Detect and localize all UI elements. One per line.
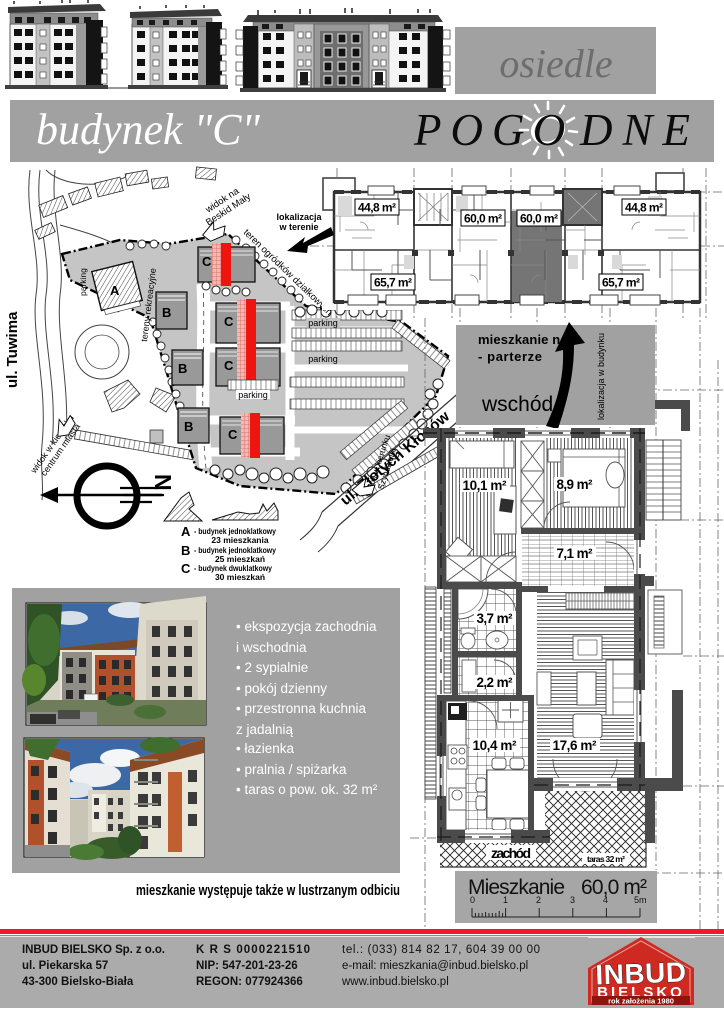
svg-text:• łazienka: • łazienka — [236, 741, 294, 756]
svg-text:O: O — [533, 105, 566, 155]
svg-text:3,7 m²: 3,7 m² — [477, 611, 514, 626]
svg-text:60,0 m²: 60,0 m² — [520, 212, 558, 226]
svg-text:44,8 m²: 44,8 m² — [358, 201, 396, 215]
svg-text:INBUD BIELSKO Sp. z o.o.: INBUD BIELSKO Sp. z o.o. — [22, 944, 165, 956]
svg-text:8,9 m²: 8,9 m² — [557, 477, 594, 492]
svg-text:mieszkanie na:: mieszkanie na: — [478, 332, 572, 347]
svg-text:ul. Piekarska 57: ul. Piekarska 57 — [22, 960, 108, 972]
svg-text:30 mieszkań: 30 mieszkań — [215, 572, 265, 582]
svg-text:Mieszkanie: Mieszkanie — [468, 876, 565, 899]
svg-text:17,6 m²: 17,6 m² — [553, 738, 598, 753]
svg-text:3: 3 — [570, 895, 575, 905]
svg-text:B: B — [184, 419, 193, 434]
svg-text:44,8 m²: 44,8 m² — [625, 201, 663, 215]
svg-text:REGON: 077924366: REGON: 077924366 — [196, 976, 303, 988]
svg-text:POG: POG — [413, 105, 533, 155]
svg-text:• taras o pow. ok. 32 m²: • taras o pow. ok. 32 m² — [236, 782, 378, 797]
svg-text:2,2 m²: 2,2 m² — [477, 675, 514, 690]
svg-text:DNE: DNE — [579, 105, 700, 155]
svg-text:C: C — [181, 561, 191, 576]
svg-text:lokalizacja w budynku: lokalizacja w budynku — [596, 333, 606, 420]
svg-text:parking: parking — [238, 390, 268, 400]
svg-text:C: C — [228, 427, 238, 442]
svg-text:w terenie: w terenie — [278, 222, 318, 232]
svg-text:- parterze: - parterze — [478, 349, 542, 364]
svg-text:parking: parking — [308, 354, 338, 364]
svg-text:C: C — [224, 314, 234, 329]
svg-text:rok założenia 1980: rok założenia 1980 — [608, 997, 674, 1006]
svg-text:parking: parking — [78, 268, 88, 296]
svg-text:• 2 sypialnie: • 2 sypialnie — [236, 660, 308, 675]
svg-text:2: 2 — [536, 895, 541, 905]
svg-text:• przestronna kuchnia: • przestronna kuchnia — [236, 701, 367, 716]
svg-text:10,1 m²: 10,1 m² — [463, 478, 508, 493]
svg-text:K R S 0000221510: K R S 0000221510 — [196, 944, 310, 956]
svg-text:osiedle: osiedle — [499, 41, 612, 86]
svg-text:parking: parking — [308, 318, 338, 328]
svg-text:B: B — [181, 543, 190, 558]
svg-text:• pokój dzienny: • pokój dzienny — [236, 681, 327, 696]
svg-text:10,4 m²: 10,4 m² — [473, 738, 518, 753]
svg-text:60,0 m²: 60,0 m² — [464, 212, 502, 226]
svg-text:lokalizacja: lokalizacja — [276, 212, 322, 222]
svg-text:C: C — [202, 254, 212, 269]
svg-text:wschód: wschód — [481, 393, 553, 416]
svg-text:ul. Tuwima: ul. Tuwima — [4, 311, 21, 388]
svg-text:e-mail: mieszkania@inbud.biels: e-mail: mieszkania@inbud.bielsko.pl — [342, 960, 528, 972]
svg-text:7,1 m²: 7,1 m² — [557, 546, 594, 561]
svg-text:N: N — [150, 474, 176, 491]
svg-text:23 mieszkania: 23 mieszkania — [211, 535, 268, 545]
svg-text:B: B — [162, 305, 171, 320]
svg-text:5m: 5m — [634, 895, 647, 905]
svg-text:NIP: 547-201-23-26: NIP: 547-201-23-26 — [196, 960, 298, 972]
svg-text:budynek "C": budynek "C" — [36, 105, 260, 154]
svg-text:A: A — [110, 283, 120, 298]
svg-text:www.inbud.bielsko.pl: www.inbud.bielsko.pl — [341, 976, 449, 988]
svg-text:zachód: zachód — [491, 845, 531, 861]
svg-text:• ekspozycja zachodnia: • ekspozycja zachodnia — [236, 619, 377, 634]
svg-text:mieszkanie występuje także w l: mieszkanie występuje także w lustrzanym … — [136, 883, 400, 899]
svg-text:taras 32 m²: taras 32 m² — [587, 854, 625, 864]
svg-text:65,7 m²: 65,7 m² — [602, 276, 640, 290]
svg-text:43-300 Bielsko-Biała: 43-300 Bielsko-Biała — [22, 976, 134, 988]
svg-text:A: A — [181, 524, 191, 539]
svg-text:z jadalnią: z jadalnią — [236, 722, 294, 737]
svg-text:0: 0 — [470, 895, 475, 905]
svg-text:65,7 m²: 65,7 m² — [374, 276, 412, 290]
svg-text:tel.: (033) 814 82 17, 604 39: tel.: (033) 814 82 17, 604 39 00 00 — [342, 944, 540, 956]
svg-text:4: 4 — [603, 895, 608, 905]
svg-text:C: C — [224, 358, 234, 373]
svg-text:i wschodnia: i wschodnia — [236, 640, 307, 655]
svg-text:• pralnia / spiżarka: • pralnia / spiżarka — [236, 762, 347, 777]
svg-text:1: 1 — [503, 895, 508, 905]
svg-text:B: B — [178, 361, 187, 376]
